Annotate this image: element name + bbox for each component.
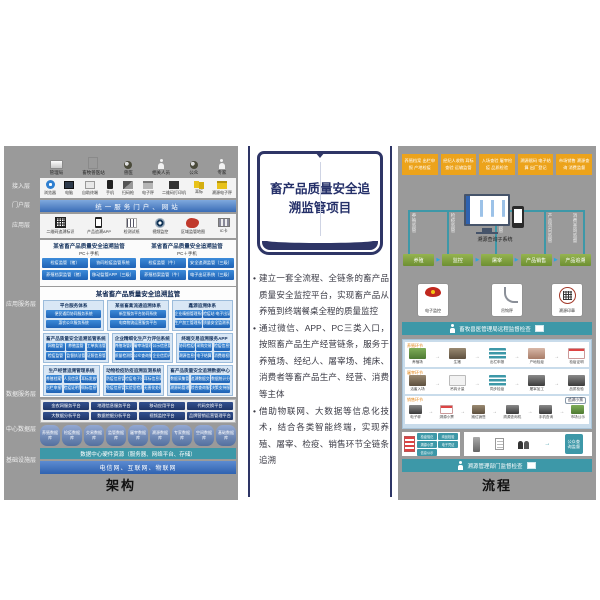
mini-teal: 信息公示 — [417, 449, 437, 456]
navy-btn: 代码交换平台 — [187, 402, 233, 410]
mini-teal: 检疫验讫 — [417, 433, 437, 440]
camera-eye-icon — [155, 218, 165, 228]
stage: 养殖档案 出栏申报 产地检疫 — [402, 154, 438, 175]
bullet-item: •借助物联网、大数据等信息化技术，结合各类智能终端，实现养殖、屠宰、检疫、销售环… — [253, 403, 389, 469]
flow-step: 养殖场 — [409, 348, 426, 365]
step-arrow-icon: → — [492, 409, 497, 415]
btn-blue: 生产加工管理系统 — [175, 320, 202, 328]
service-group-2: 某省畜禽流通追溯体系 新型服务平台协同系统电商物流运营服务平台 — [107, 300, 168, 331]
btn-blue: 协同检疫监管系统 — [90, 258, 136, 268]
qr-stamp-icon — [559, 287, 576, 304]
public-query-box: → 公众查询监督 — [464, 432, 592, 456]
btn-blue: 公示信息管理 — [152, 343, 169, 351]
certificate-thumbnail — [404, 436, 415, 452]
chain-label: 养殖监管 — [411, 213, 417, 233]
app-phone-icon — [95, 217, 102, 228]
receipt-tag: 追溯小票 — [565, 397, 586, 404]
globe-icon — [190, 161, 198, 169]
layer-label: 应用层 — [5, 223, 37, 230]
btn-blue: 溯源信息查询 — [179, 352, 195, 360]
business-systems-row: 生产经营追溯管理系统 养殖档案管理人员信息管理耳标发放管理出栏申报管理检疫证明管… — [43, 365, 233, 396]
photo-thumbnail — [539, 405, 552, 414]
stage: 溯源赋码 电子结算 出厂登记 — [518, 154, 554, 175]
btn-blue: 监督执法管理 — [66, 352, 85, 360]
db-pill: 基础数据库 — [216, 425, 236, 446]
book-spine — [262, 241, 378, 250]
btn-blue: 防疫信息管理 — [106, 375, 123, 383]
arrow-icon: → — [544, 441, 550, 447]
step-label: 屠宰加工 — [530, 387, 544, 392]
db-pill: 溯源数据库 — [150, 425, 170, 446]
btn-blue: 消费维权服务 — [214, 352, 230, 360]
btn-blue: 协同检疫申报 — [179, 343, 195, 351]
btn-blue: 无害化处理 — [144, 385, 161, 393]
photo-thumbnail — [528, 348, 545, 359]
btn-blue: 决策支持服务 — [211, 385, 230, 393]
btn-blue: 检疫监管（牛） — [140, 258, 186, 268]
btn-blue: 人员信息管理 — [64, 375, 80, 383]
supervision-group-cattle: 某省畜产品质量安全追溯监管 PC＋手机 检疫监管（牛）安全追溯监管（三级）养殖档… — [140, 242, 234, 284]
project-title: 畜产品质量安全追溯监管项目 — [266, 180, 374, 219]
step-label: 同步检疫 — [490, 387, 504, 392]
mini-teal: 电子凭证 — [438, 441, 458, 448]
flow-step: 摊位销售 — [471, 405, 485, 420]
application-systems-row: 畜产品质量安全追溯监管系统 网格监管养殖监管工单执法管理检疫监管监督执法管理证照… — [43, 333, 233, 364]
monitor-graphic — [464, 194, 510, 226]
layer-label: 数据服务层 — [5, 392, 37, 399]
stage: 市场销售 溯源查询 消费监督 — [556, 154, 592, 175]
btn-blue: 追溯数据交换 — [191, 375, 210, 383]
test-strip-cell: 检测试纸 — [124, 218, 140, 235]
flow-arrow-icon: ▶ — [436, 257, 440, 263]
book-graphic: 畜产品质量安全追溯监管项目 — [257, 151, 383, 255]
dual-supervision-groups: 某省畜产品质量安全追溯监管 PC＋手机 检疫监管（猪）协同检疫监管系统养殖档案监… — [40, 240, 236, 286]
camera-card: 电子监控 — [418, 284, 448, 316]
scale-icon — [143, 181, 153, 189]
btn-blue: 屠宰场管理 — [134, 343, 151, 351]
photo-thumbnail — [489, 375, 506, 386]
btn-blue: 养殖场管理 — [115, 343, 132, 351]
ear-tag-icon — [194, 181, 199, 188]
navy-btn: 移动应用平台 — [139, 402, 185, 410]
middle-left-border — [248, 146, 250, 497]
access-layer-strip: 浏览器 电脑 自助终端 手机 扫码枪 电子秤 二维码打印机 耳标 溯源电子秤 — [40, 178, 236, 198]
app-group-1: 畜产品质量安全追溯监管系统 网格监管养殖监管工单执法管理检疫监管监督执法管理证照… — [43, 333, 109, 364]
query-terminal-icon — [473, 437, 480, 452]
map-cell: 区域监管地图 — [181, 218, 205, 235]
support-platforms: 金农网服务平台地理信息服务平台移动应用平台代码交换平台大数据分析平台数据挖掘分析… — [40, 399, 236, 423]
flow-step: 出栏申报 — [489, 348, 506, 365]
step-label: 市场公示 — [571, 415, 585, 420]
photo-thumbnail — [489, 348, 506, 359]
bullet-item: •建立一套全流程、全链条的畜产品质量安全监控平台，实现畜产品从养殖到终端餐桌全程… — [253, 270, 389, 320]
navy-btn: 金农网服务平台 — [43, 402, 89, 410]
certificate-box: 检疫验讫肉品检验溯源小票电子凭证信息公示 — [402, 432, 460, 456]
kiosk-icon — [85, 181, 95, 189]
chain-label: 检疫监管 — [450, 213, 456, 233]
qr-label-cell: 二维码追溯标识 — [46, 217, 74, 235]
person-icon — [219, 159, 225, 169]
browser-device: 浏览器 — [44, 180, 56, 196]
browser-icon — [46, 180, 55, 189]
photo-thumbnail — [409, 405, 422, 414]
btn-blue: 电子出证系统（三级） — [188, 270, 234, 280]
step-label: 活畜入场 — [410, 387, 424, 392]
btn-blue: 耳标信息采集 — [144, 375, 161, 383]
btn-blue: 耳标发放管理 — [81, 375, 97, 383]
btn-blue: 网格监管 — [46, 343, 65, 351]
flow-row-breeding: 养殖环节 养殖场→生猪→出栏申报→产地检疫→检疫证明 — [405, 342, 589, 367]
btn-blue: 电子结算管理 — [196, 352, 212, 360]
hook-scale-card: 吊钩秤 — [492, 284, 522, 316]
btn-blue: 公众查询服务 — [134, 352, 151, 360]
test-strip-icon — [126, 218, 137, 228]
flow-arrow-icon: ▶ — [515, 257, 519, 263]
pbtn: 屠宰 — [481, 254, 512, 266]
supervision-bar-bottom: 溯源管理部门监督检查 — [402, 459, 592, 472]
btn-blue: 便民通用协同服务系统 — [46, 310, 101, 318]
scanner-icon — [123, 181, 133, 189]
pbtn: 监控 — [442, 254, 473, 266]
step-label: 溯源小票 — [440, 415, 454, 420]
flow-step: 溯源小票 — [440, 405, 454, 420]
biz-group-3: 畜产品质量安全追溯数据中心 数据采集管理追溯数据交换数据统计分析溯源码管理综合查… — [167, 365, 233, 396]
btn-blue: 工单执法管理 — [87, 343, 106, 351]
flow-row-sales: 销售环节 追溯小票 电子秤→溯源小票→摊位销售→溯源查询机→手机查询→市场公示 — [405, 396, 589, 424]
flow-step: 市场公示 — [571, 405, 585, 420]
stage: 经纪人收购 耳标查验 运输监管 — [441, 154, 477, 175]
btn-blue: 企业信用评价 — [152, 352, 169, 360]
phone-icon — [107, 180, 113, 189]
photo-thumbnail — [409, 375, 426, 386]
flow-arrow-icon: ▶ — [475, 257, 479, 263]
ic-card-icon — [218, 218, 230, 227]
architecture-panel: 接入层门户层应用层应用服务层数据服务层中心数据层基础设施层 管理局 畜牧兽医站 … — [4, 146, 238, 500]
drop-line — [447, 210, 449, 254]
btn-blue: 养殖监管 — [66, 343, 85, 351]
flow-step: 吊钩计量 — [449, 375, 466, 392]
layer-label: 基础设施层 — [5, 458, 37, 465]
step-arrow-icon: → — [554, 381, 559, 387]
scale-device: 电子秤 — [142, 181, 154, 196]
process-caption: 流程 — [398, 475, 596, 494]
surveillance-camera-icon — [425, 287, 441, 297]
btn-blue: 数据采集管理 — [170, 375, 189, 383]
databases-row: 养殖数据库检疫数据库交易数据库监管数据库屠宰数据库溯源数据库专家数据库空间数据库… — [40, 425, 236, 446]
scanner-device: 扫码枪 — [122, 181, 134, 196]
btn-blue: 新型服务平台协同系统 — [110, 310, 165, 318]
qr-printer-device: 二维码打印机 — [162, 181, 186, 196]
db-pill: 专家数据库 — [172, 425, 192, 446]
actor-vet: 兽医 — [124, 161, 133, 176]
platform-title: 某省畜产品质量安全追溯监管 — [40, 287, 236, 298]
btn-blue: 养殖档案监管（猪） — [42, 270, 88, 280]
platform-section: 某省畜产品质量安全追溯监管 平台服务体系 便民通用协同服务系统惠农公众服务系统 … — [40, 287, 236, 397]
actor-bureau: 管理局 — [50, 160, 64, 176]
db-pill: 监管数据库 — [106, 425, 126, 446]
china-map-icon — [186, 218, 199, 228]
project-bullets: •建立一套全流程、全链条的畜产品质量安全监控平台，实现畜产品从养殖到终端餐桌全程… — [253, 270, 389, 469]
photo-thumbnail — [449, 348, 466, 359]
person-icon — [450, 324, 455, 333]
btn-blue: 企业精细管理系统（禽） — [175, 310, 202, 318]
consumers-icon — [518, 439, 530, 449]
pbtn: 产品销售 — [521, 254, 552, 266]
hardware-bar: 数据中心硬件资源（服务器、网络平台、存储） — [40, 448, 236, 459]
biz-group-2: 动物检疫防疫追溯监测系统 防疫信息管理检疫电子出证耳标信息采集免疫信息管理实验室… — [103, 365, 164, 396]
mini-teal: 肉品检验 — [438, 433, 458, 440]
public-supervision-label: 公众查询监督 — [565, 434, 583, 454]
phone-device: 手机 — [106, 180, 114, 196]
service-group-3: 鑫源追溯体系 企业精细管理系统（禽）检疫站·电子出证系统生产加工管理系统质量安全… — [172, 300, 233, 331]
btn-blue: 养殖档案监管（牛） — [140, 270, 186, 280]
btn-blue: 质量检测管理 — [115, 352, 132, 360]
photo-thumbnail — [568, 348, 585, 359]
step-label: 生猪 — [454, 360, 461, 365]
ic-card-cell: IC卡 — [218, 218, 230, 234]
server-icon — [88, 157, 98, 169]
service-systems-row: 平台服务体系 便民通用协同服务系统惠农公众服务系统 某省畜禽流通追溯体系 新型服… — [43, 300, 233, 331]
qr-code-icon — [55, 217, 66, 228]
system-label: 溯源查询子系统 — [445, 236, 545, 243]
step-arrow-icon: → — [475, 354, 480, 360]
flow-detail-panel: 养殖环节 养殖场→生猪→出栏申报→产地检疫→检疫证明 屠宰环节 活畜入场→吊钩计… — [402, 339, 592, 429]
flow-step: 生猪 — [449, 348, 466, 365]
layer-label: 接入层 — [5, 184, 37, 191]
actor-station: 畜牧兽医站 — [82, 157, 105, 176]
step-label: 手机查询 — [539, 415, 553, 420]
drop-line — [583, 210, 585, 254]
person-icon — [458, 461, 463, 470]
process-stages: 养殖档案 出栏申报 产地检疫经纪人收购 耳标查验 运输监管入场查验 屠宰检疫 品… — [402, 154, 592, 175]
btn-blue: 检疫监管 — [46, 352, 65, 360]
photo-thumbnail — [571, 405, 584, 414]
bullet-item: •通过微信、APP、PC三类入口，按照畜产品生产经营链条，服务于养殖场、经纪人、… — [253, 320, 389, 403]
step-label: 品质检验 — [569, 387, 583, 392]
step-label: 养殖场 — [412, 360, 423, 365]
step-arrow-icon: → — [559, 409, 564, 415]
actor-staff: 相关人员 — [152, 159, 170, 176]
step-label: 吊钩计量 — [450, 387, 464, 392]
db-pill: 养殖数据库 — [40, 425, 60, 446]
architecture-caption: 架构 — [4, 475, 238, 494]
step-arrow-icon: → — [475, 381, 480, 387]
photo-thumbnail — [409, 348, 426, 359]
printer-icon — [50, 160, 63, 169]
navy-btn: 数据挖掘分析平台 — [91, 412, 137, 420]
flow-step: 手机查询 — [539, 405, 553, 420]
btn-blue: 移动监管APP（三级） — [90, 270, 136, 280]
step-label: 检疫证明 — [569, 360, 583, 365]
monitor-base — [476, 232, 498, 234]
bottom-boxes: 检疫验讫肉品检验溯源小票电子凭证信息公示 → 公众查询监督 — [402, 432, 592, 456]
chain-label: 产品流向监管 — [547, 213, 553, 243]
flow-step: 活畜入场 — [409, 375, 426, 392]
flow-step: 屠宰加工 — [528, 375, 545, 392]
process-buttons: 养殖▶监控▶屠宰▶产品销售▶产品追溯 — [403, 254, 591, 266]
chain-label: 消费查询监督 — [572, 213, 578, 243]
trace-app-cell: 产品追溯APP — [87, 217, 111, 235]
phone-graphic — [512, 206, 524, 228]
drop-line — [408, 210, 410, 254]
drop-line — [544, 210, 546, 254]
pbtn: 养殖 — [403, 254, 434, 266]
btn-blue: 实验室检测 — [125, 385, 142, 393]
navy-btn: 大数据分析平台 — [43, 412, 89, 420]
photo-thumbnail — [472, 405, 485, 414]
photo-thumbnail — [449, 375, 466, 386]
biz-group-1: 生产经营追溯管理系统 养殖档案管理人员信息管理耳标发放管理出栏申报管理检疫证明管… — [43, 365, 100, 396]
step-arrow-icon: → — [435, 381, 440, 387]
slide-canvas: 接入层门户层应用层应用服务层数据服务层中心数据层基础设施层 管理局 畜牧兽医站 … — [0, 0, 600, 600]
trace-scale-icon — [217, 181, 227, 189]
portal-bar: 统一服务门户、网站 — [40, 200, 236, 212]
actor-public: 公众 — [189, 161, 198, 176]
flow-step: 溯源查询机 — [503, 405, 521, 420]
screen-icon — [535, 325, 544, 332]
service-group-1: 平台服务体系 便民通用协同服务系统惠农公众服务系统 — [43, 300, 104, 331]
step-arrow-icon: → — [527, 409, 532, 415]
step-label: 出栏申报 — [490, 360, 504, 365]
step-arrow-icon: → — [435, 354, 440, 360]
app-group-2: 企业精细化生产力评估系统 养殖场管理屠宰场管理公示信息管理质量检测管理公众查询服… — [112, 333, 173, 364]
person-icon — [158, 159, 164, 169]
navy-btn: 地理信息服务平台 — [91, 402, 137, 410]
trace-stamp-card: 溯源印章 — [552, 284, 582, 316]
btn-blue: 检疫电子出证 — [125, 375, 142, 383]
stage: 入场查验 屠宰检疫 品质检验 — [479, 154, 515, 175]
flow-step: 电子秤 — [409, 405, 422, 420]
step-arrow-icon: → — [460, 409, 465, 415]
photo-thumbnail — [568, 375, 585, 386]
step-label: 溯源查询机 — [503, 415, 521, 420]
btn-blue: 检疫信息查询 — [214, 343, 230, 351]
db-pill: 屠宰数据库 — [128, 425, 148, 446]
process-panel: 养殖档案 出栏申报 产地检疫经纪人收购 耳标查验 运输监管入场查验 屠宰检疫 品… — [398, 146, 596, 500]
flow-step: 品质检验 — [568, 375, 585, 392]
layer-label: 应用服务层 — [5, 302, 37, 309]
qr-printer-icon — [169, 181, 179, 189]
btn-blue: 免疫信息管理 — [106, 385, 123, 393]
btn-blue: 出栏申报管理 — [46, 385, 62, 393]
btn-blue: 惠农公众服务系统 — [46, 320, 101, 328]
step-label: 产地检疫 — [530, 360, 544, 365]
navy-btn: 视频监控平台 — [139, 412, 185, 420]
app-group-3: 终端交易追溯服务APP 协同检疫申报采购交易管理检疫信息查询溯源信息查询电子结算… — [176, 333, 233, 364]
db-pill: 空间数据库 — [194, 425, 214, 446]
btn-blue: 检疫站·电子出证系统 — [203, 310, 230, 318]
navy-btn: 品牌营销运营管理平台 — [187, 412, 233, 420]
cctv-cell: 视频监控 — [152, 218, 168, 235]
photo-thumbnail — [440, 405, 453, 414]
network-bar: 电信网、互联网、物联网 — [40, 461, 236, 474]
db-pill: 检疫数据库 — [62, 425, 82, 446]
btn-blue: 佩标信息管理 — [81, 385, 97, 393]
mini-teal: 溯源小票 — [417, 441, 437, 448]
btn-blue: 采购交易管理 — [196, 343, 212, 351]
receipt-icon — [495, 438, 504, 450]
btn-blue: 综合查询服务 — [191, 385, 210, 393]
step-arrow-icon: → — [514, 381, 519, 387]
actor-expert: 专家 — [217, 159, 226, 176]
btn-blue: 质量安全监测系统 — [203, 320, 230, 328]
flow-step: 产地检疫 — [528, 348, 545, 365]
btn-blue: 检疫证明管理 — [64, 385, 80, 393]
monitor-icon — [64, 181, 74, 189]
btn-blue: 证照信息管理 — [87, 352, 106, 360]
flow-row-slaughter: 屠宰环节 活畜入场→吊钩计量→同步检疫→屠宰加工→品质检验 — [405, 369, 589, 394]
trace-scale-device: 溯源电子秤 — [212, 181, 232, 196]
btn-blue: 安全追溯监管（三级） — [188, 258, 234, 268]
btn-blue: 数据统计分析 — [211, 375, 230, 383]
flow-step: 检疫证明 — [568, 348, 585, 365]
hook-icon — [504, 287, 518, 303]
eartag-device: 耳标 — [194, 181, 204, 195]
application-terminal-strip: 二维码追溯标识 产品追溯APP 检测试纸 视频监控 区域监管地图 IC卡 — [40, 214, 236, 238]
globe-icon — [124, 161, 132, 169]
flow-arrow-icon: ▶ — [554, 257, 558, 263]
step-arrow-icon: → — [514, 354, 519, 360]
btn-blue: 溯源码管理 — [170, 385, 189, 393]
btn-blue: 检疫监管（猪） — [42, 258, 88, 268]
step-label: 摊位销售 — [471, 415, 485, 420]
layer-label: 中心数据层 — [5, 427, 37, 434]
screen-icon — [527, 462, 536, 469]
step-arrow-icon: → — [428, 409, 433, 415]
kiosk-device: 自助终端 — [82, 181, 98, 196]
layer-label: 门户层 — [5, 203, 37, 210]
btn-blue: 养殖档案管理 — [46, 375, 62, 383]
supervision-bar-top: 畜牧兽医管理局远程监督检查 — [402, 322, 592, 335]
photo-thumbnail — [528, 375, 545, 386]
supervision-group-pig: 某省畜产品质量安全追溯监管 PC＋手机 检疫监管（猪）协同检疫监管系统养殖档案监… — [42, 242, 136, 284]
btn-blue: 电商物流运营服务平台 — [110, 320, 165, 328]
step-arrow-icon: → — [554, 354, 559, 360]
pbtn: 产品追溯 — [560, 254, 591, 266]
middle-right-border — [390, 146, 392, 497]
flow-step: 同步检疫 — [489, 375, 506, 392]
photo-thumbnail — [506, 405, 519, 414]
actors-row: 管理局 畜牧兽医站 兽医 相关人员 公众 专家 — [40, 148, 236, 176]
pc-device: 电脑 — [64, 181, 74, 196]
step-label: 电子秤 — [410, 415, 421, 420]
db-pill: 交易数据库 — [84, 425, 104, 446]
